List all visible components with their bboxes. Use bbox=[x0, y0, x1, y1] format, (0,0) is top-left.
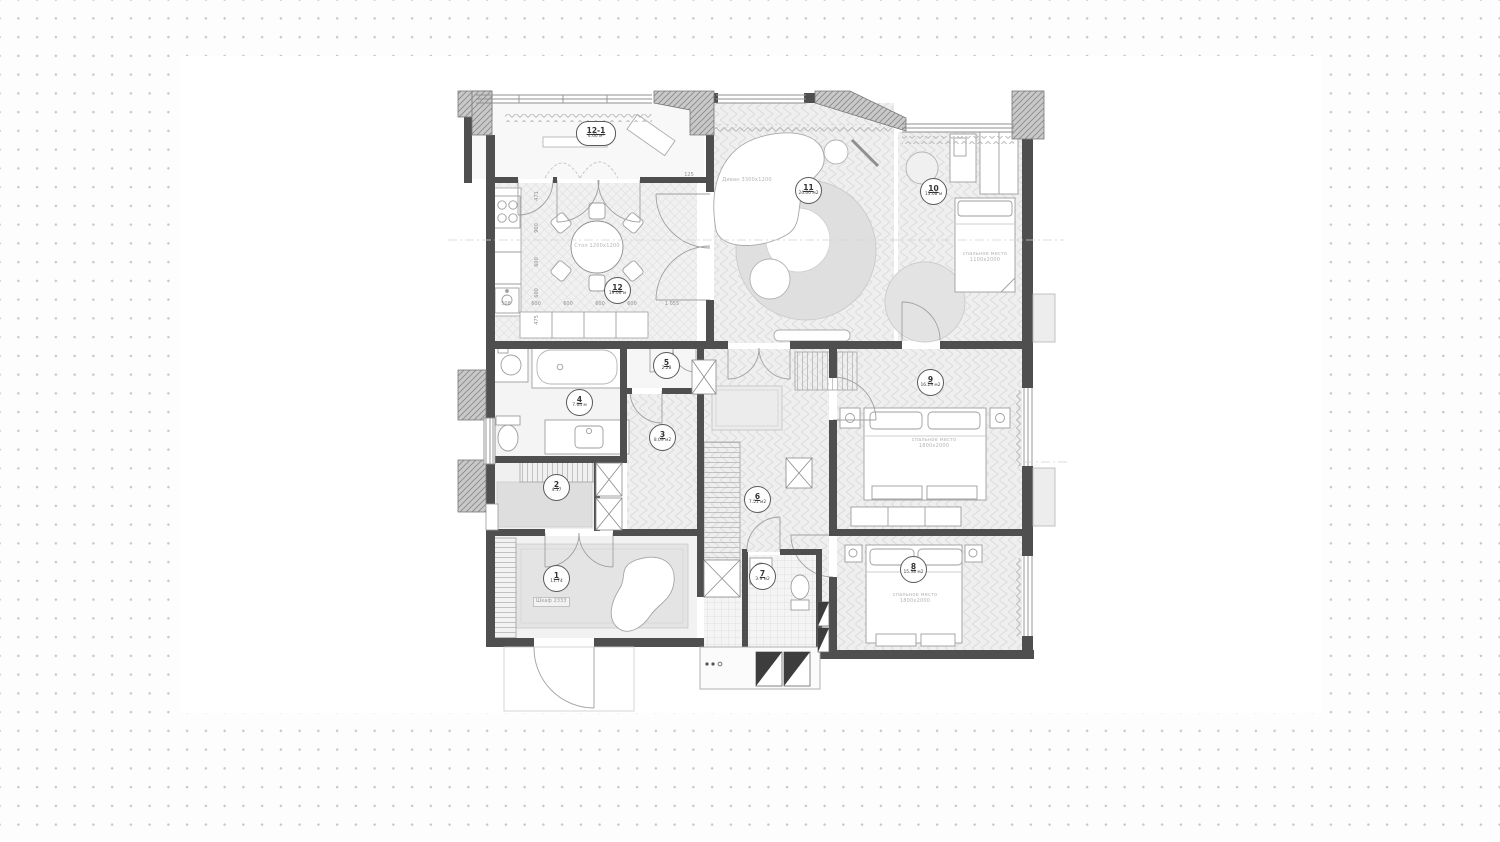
room-area: 7.04 м bbox=[572, 404, 586, 409]
room-area: 7.51 м2 bbox=[749, 501, 766, 506]
room-area: 4.66 м² bbox=[588, 135, 604, 140]
room-label-10: 10 13.08 м bbox=[920, 178, 947, 205]
room-label-6: 6 7.51 м2 bbox=[744, 486, 771, 513]
dim-bottom-3: 600 bbox=[558, 301, 578, 307]
room-label-12: 12 19.06 м bbox=[604, 277, 631, 304]
room-label-3: 3 8.09 м2 bbox=[649, 424, 676, 451]
room-label-5: 5 2.28 bbox=[653, 352, 680, 379]
wardrobe-label: Шкаф 2333 bbox=[533, 597, 570, 607]
floor-plan-drawing bbox=[0, 0, 1500, 842]
room-label-12-1: 12-1 4.66 м² bbox=[576, 121, 616, 146]
room-area: 11.74 bbox=[550, 580, 563, 585]
room-area: 3.9 м2 bbox=[755, 578, 769, 583]
room-area: 24.00 м2 bbox=[798, 192, 818, 197]
dim-bottom-4: 600 bbox=[590, 301, 610, 307]
dim-left-1: 471 bbox=[534, 183, 540, 209]
room-area: 2.28 bbox=[662, 367, 672, 372]
bed-second-label: спальное место 1800x2000 bbox=[877, 592, 953, 605]
bed-label-line2: 1800x2000 bbox=[877, 598, 953, 604]
room-label-4: 4 7.04 м bbox=[566, 389, 593, 416]
dim-bottom-1: 508 bbox=[496, 301, 516, 307]
bed-label-line2: 1800x2000 bbox=[896, 443, 972, 449]
table-label: Стол 1200x1200 bbox=[558, 243, 636, 249]
bed-label-line2: 1100x2000 bbox=[949, 257, 1021, 263]
room-area: 8.09 м2 bbox=[654, 439, 671, 444]
floor-plan-page: { "background": { "dot_color": "#c6c6c6"… bbox=[0, 0, 1500, 842]
room-area: 16.29 м2 bbox=[920, 384, 940, 389]
room-label-2: 2 4.17 bbox=[543, 474, 570, 501]
dim-bottom-5: 600 bbox=[622, 301, 642, 307]
room-area: 19.06 м bbox=[609, 292, 626, 297]
dim-left-2: 900 bbox=[534, 215, 540, 241]
dim-left-3: 600 bbox=[534, 249, 540, 275]
bed-master-label: спальное место 1800x2000 bbox=[896, 437, 972, 450]
room-label-1: 1 11.74 bbox=[543, 565, 570, 592]
room-label-7: 7 3.9 м2 bbox=[749, 563, 776, 590]
sofa-label: Диван 3300x1200 bbox=[707, 177, 787, 183]
dim-bottom-6: 1 055 bbox=[658, 301, 686, 307]
dim-left-5: 475 bbox=[534, 307, 540, 333]
room-label-11: 11 24.00 м2 bbox=[795, 177, 822, 204]
room-label-9: 9 16.29 м2 bbox=[917, 369, 944, 396]
room-area: 15.38 м2 bbox=[903, 571, 923, 576]
dim-bottom-2: 600 bbox=[526, 301, 546, 307]
dim-door: 125 bbox=[679, 172, 699, 178]
room-label-8: 8 15.38 м2 bbox=[900, 556, 927, 583]
room-area: 13.08 м bbox=[925, 193, 942, 198]
room-area: 4.17 bbox=[552, 489, 562, 494]
bed-single-label: спальное место 1100x2000 bbox=[949, 251, 1021, 264]
